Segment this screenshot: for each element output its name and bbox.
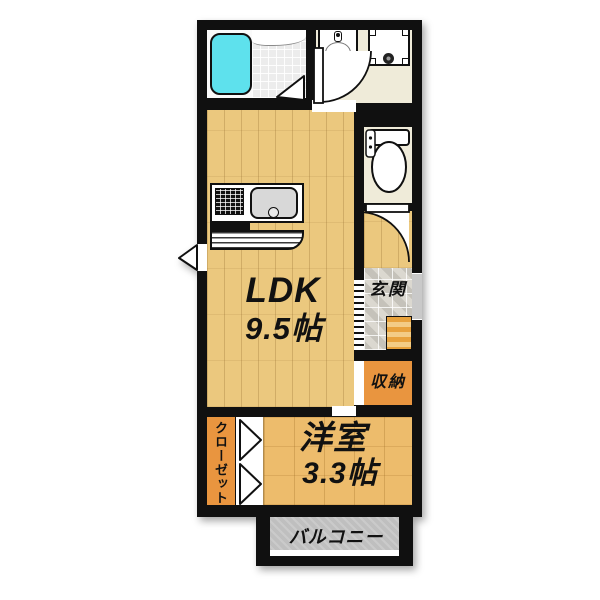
ldk-size-label: 9.5帖 (245, 313, 323, 344)
front-door (412, 273, 422, 320)
drain-icon (383, 53, 394, 64)
hall-floor (364, 211, 412, 268)
closet-label: クローゼット (214, 421, 227, 505)
window-marker-icon (179, 245, 197, 270)
wall-bath-wash-divider (306, 26, 316, 106)
wall-below-toilet (364, 203, 412, 211)
wall-below-washroom (356, 103, 422, 127)
western-room-label: 洋室 (299, 421, 367, 454)
pan-corner (402, 58, 409, 65)
accordion-door (354, 278, 364, 352)
entrance-label: 玄関 (369, 281, 407, 298)
storage-label: 収納 (370, 375, 406, 391)
western-room-size-label: 3.3帖 (302, 459, 378, 489)
wall-balcony-bottom (256, 556, 413, 566)
floorplan-canvas: LDK 9.5帖 洋室 3.3帖 玄関 収納 バルコニー クローゼット (0, 0, 600, 600)
entrance-step-icon (386, 316, 412, 350)
basin-bowl (325, 42, 351, 64)
storage-opening (354, 361, 364, 405)
balcony-label: バルコニー (289, 528, 384, 546)
basin-faucet-dot (336, 33, 340, 37)
washroom-threshold (312, 100, 356, 112)
window-gap (197, 244, 207, 271)
stove-icon (215, 188, 244, 215)
balcony-inner-line (270, 550, 399, 556)
pan-corner (369, 58, 376, 65)
sink-faucet-icon (268, 207, 279, 218)
ldk-label: LDK (246, 273, 321, 308)
pan-corner (402, 29, 409, 36)
pan-corner (369, 29, 376, 36)
wall-right (412, 20, 422, 517)
wall-bottom-main (197, 505, 422, 517)
western-room-door-gap (332, 406, 356, 416)
wall-entrance-storage-divider (356, 350, 422, 361)
washbasin-icon (318, 30, 358, 72)
closet-door-strip (236, 417, 264, 505)
ldk-floor (207, 110, 354, 407)
counter-edge-bar (210, 221, 250, 230)
bathtub-icon (210, 33, 252, 95)
counter-front-panel (210, 230, 304, 250)
toilet-room-floor (364, 127, 412, 203)
washer-pan-icon (368, 28, 410, 66)
floor-plan: LDK 9.5帖 洋室 3.3帖 玄関 収納 バルコニー クローゼット (0, 0, 600, 600)
